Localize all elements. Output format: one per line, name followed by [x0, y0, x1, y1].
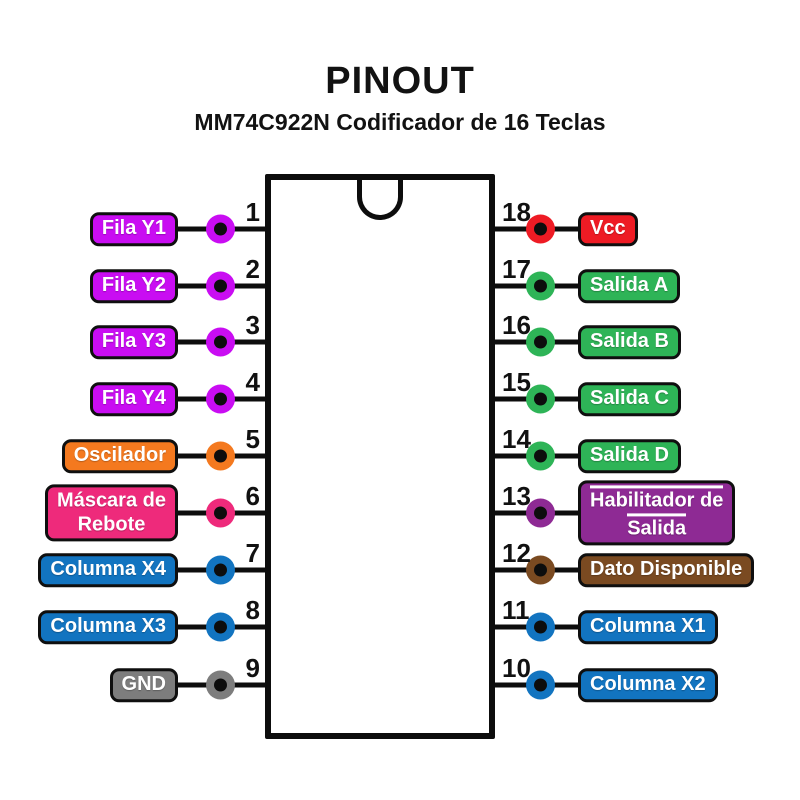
pin-17-label-badge: Salida A — [578, 269, 680, 303]
pin-4-number: 4 — [180, 369, 260, 395]
pin-3-label-badge: Fila Y3 — [90, 325, 178, 359]
pin-15-number: 15 — [502, 369, 582, 395]
pin-4-label-badge: Fila Y4 — [90, 382, 178, 416]
pin-17-number: 17 — [502, 256, 582, 282]
pin-2-label-badge: Fila Y2 — [90, 269, 178, 303]
pin-8-number: 8 — [180, 597, 260, 623]
pin-10-label: Columna X2 — [590, 673, 706, 697]
pin-18-label-badge: Vcc — [578, 212, 638, 246]
page-title: PINOUT — [0, 60, 800, 103]
chip-body — [265, 174, 495, 739]
pin-15-label: Salida C — [590, 387, 669, 411]
pin-11-label-badge: Columna X1 — [578, 610, 718, 644]
pin-5-number: 5 — [180, 426, 260, 452]
pin-14-label-badge: Salida D — [578, 439, 681, 473]
pin-7-number: 7 — [180, 540, 260, 566]
pin-4-label: Fila Y4 — [102, 387, 166, 411]
pin-15-label-badge: Salida C — [578, 382, 681, 416]
pin-12-number: 12 — [502, 540, 582, 566]
pin-7-label-badge: Columna X4 — [38, 553, 178, 587]
pin-14-label: Salida D — [590, 444, 669, 468]
pin-3-number: 3 — [180, 312, 260, 338]
pin-5-label-badge: Oscilador — [62, 439, 178, 473]
pin-8-label: Columna X3 — [50, 615, 166, 639]
pin-2-label: Fila Y2 — [102, 274, 166, 298]
pin-11-label: Columna X1 — [590, 615, 706, 639]
pin-14-number: 14 — [502, 426, 582, 452]
pin-13-number: 13 — [502, 483, 582, 509]
pin-9-label-badge: GND — [110, 668, 178, 702]
pin-13-label-line1: Habilitador de — [590, 485, 723, 513]
pin-17-label: Salida A — [590, 274, 668, 298]
pin-2-number: 2 — [180, 256, 260, 282]
pin-12-label: Dato Disponible — [590, 558, 742, 582]
pin-18-label: Vcc — [590, 217, 626, 241]
pin-12-label-badge: Dato Disponible — [578, 553, 754, 587]
pin-18-number: 18 — [502, 199, 582, 225]
pin-16-number: 16 — [502, 312, 582, 338]
pin-13-label-badge: Habilitador deSalida — [578, 480, 735, 545]
pin-13-label-line2: Salida — [627, 513, 686, 541]
pin-11-number: 11 — [502, 597, 582, 623]
pin-16-label: Salida B — [590, 330, 669, 354]
pin-10-number: 10 — [502, 655, 582, 681]
pin-3-label: Fila Y3 — [102, 330, 166, 354]
pin-9-number: 9 — [180, 655, 260, 681]
pin-5-label: Oscilador — [74, 444, 166, 468]
pin-10-label-badge: Columna X2 — [578, 668, 718, 702]
pin-9-label: GND — [122, 673, 166, 697]
pin-16-label-badge: Salida B — [578, 325, 681, 359]
pin-1-number: 1 — [180, 199, 260, 225]
page-subtitle: MM74C922N Codificador de 16 Teclas — [0, 109, 800, 136]
pin-6-label-line2: Rebote — [78, 513, 146, 537]
pin-6-label-line1: Máscara de — [57, 489, 166, 513]
pin-6-label-badge: Máscara deRebote — [45, 484, 178, 541]
pin-6-number: 6 — [180, 483, 260, 509]
pin-8-label-badge: Columna X3 — [38, 610, 178, 644]
pin-7-label: Columna X4 — [50, 558, 166, 582]
pin-1-label-badge: Fila Y1 — [90, 212, 178, 246]
pin-1-label: Fila Y1 — [102, 217, 166, 241]
